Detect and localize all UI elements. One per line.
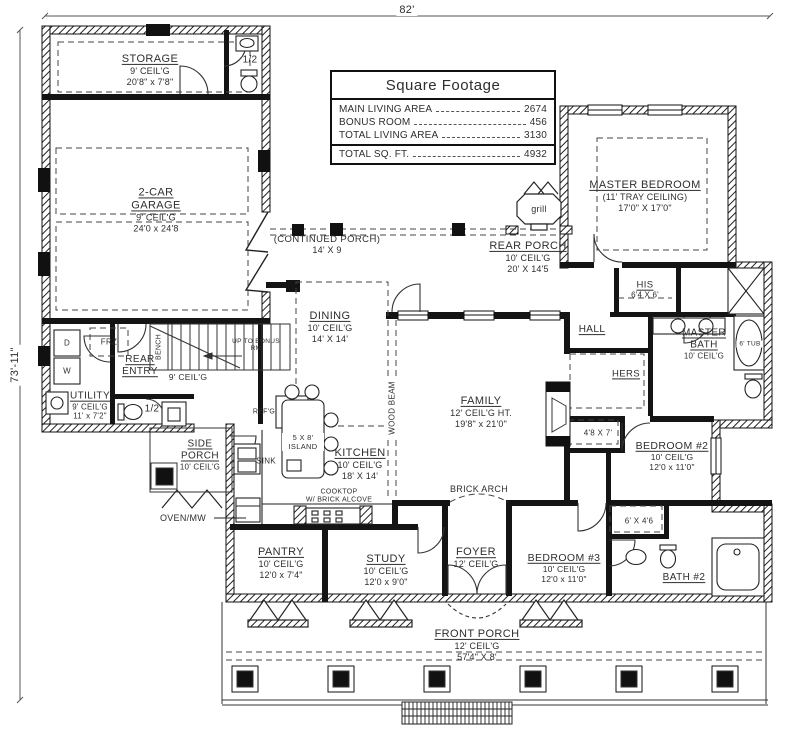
- room-name: PANTRY: [258, 546, 304, 559]
- room-label-pantry: PANTRY 10' CEIL'G 12'0 x 7'4": [258, 546, 304, 580]
- room-size: 14' X 9: [274, 245, 381, 256]
- square-footage-table: Square Footage MAIN LIVING AREA 2674 BON…: [330, 70, 556, 165]
- toilet-icon: [660, 545, 676, 550]
- room-label-continued-porch: (CONTINUED PORCH) 14' X 9: [274, 234, 381, 256]
- dryer-label: D: [64, 339, 70, 348]
- room-size: 12'0 x 9'0": [364, 576, 409, 587]
- dimension-left: 73'-11": [9, 344, 21, 385]
- room-name: UTILITY: [70, 391, 110, 403]
- room-label-hall: HALL: [579, 324, 606, 336]
- room-ceiling: 9' CEIL'G: [122, 66, 178, 77]
- room-name: HIS: [631, 280, 659, 291]
- room-name: BEDROOM #2: [636, 440, 709, 452]
- washer-label: W: [63, 367, 71, 376]
- table-row: MAIN LIVING AREA 2674: [339, 103, 547, 116]
- room-size: 19'8" x 21'0": [450, 418, 512, 429]
- room-size: 14' X 14': [308, 333, 353, 344]
- room-name: MASTER BATH: [675, 327, 733, 351]
- room-label-garage: 2-CAR GARAGE 9' CEIL'G 24'0 x 24'8: [124, 186, 188, 233]
- porch-columns: [232, 666, 738, 692]
- table-total-row: TOTAL SQ. FT. 4932: [332, 144, 554, 163]
- oven-mw-label: OVEN/MW: [160, 513, 206, 523]
- room-name: KITCHEN: [334, 447, 385, 460]
- room-label-master-bath: MASTER BATH 10' CEIL'G: [675, 327, 733, 360]
- bath2-icons: [626, 538, 764, 596]
- floor-plan: Square Footage MAIN LIVING AREA 2674 BON…: [0, 0, 800, 729]
- room-ceiling: 10' CEIL'G: [528, 564, 601, 574]
- room-name: FAMILY: [450, 395, 512, 408]
- room-name: FOYER: [454, 546, 499, 559]
- room-size: 11' x 7'2": [70, 412, 110, 421]
- room-label-rear-porch: REAR PORCH 10' CEIL'G 20' X 14'5: [489, 240, 566, 274]
- leader-line: [413, 156, 520, 157]
- room-label-dining: DINING 10' CEIL'G 14' X 14': [308, 310, 353, 344]
- room-size: 12'0 x 11'0": [528, 574, 601, 584]
- room-size: 18' X 14': [334, 470, 385, 481]
- room-ceiling: 12' CEIL'G: [435, 641, 520, 652]
- closet-a-label: 4'8 X 7': [584, 429, 613, 438]
- room-name: HERS: [612, 368, 640, 379]
- room-ceiling: 10' CEIL'G: [172, 462, 228, 471]
- room-label-master-bedroom: MASTER BEDROOM (11' TRAY CEILING) 17'0" …: [589, 179, 700, 213]
- leader-line: [436, 111, 520, 112]
- room-label-utility: UTILITY 9' CEIL'G 11' x 7'2": [70, 391, 110, 422]
- toilet-icon: [745, 374, 762, 379]
- cooktop-sub-label: W/ BRICK ALCOVE: [306, 497, 372, 504]
- bench-label: BENCH: [156, 334, 163, 360]
- room-ceiling: 10' CEIL'G: [675, 351, 733, 360]
- room-label-front-porch: FRONT PORCH 12' CEIL'G 57'4" X 8': [435, 628, 520, 662]
- leader-line: [442, 137, 520, 138]
- room-ceiling: 10' CEIL'G: [489, 253, 566, 264]
- room-label-family: FAMILY 12' CEIL'G HT. 19'8" x 21'0": [450, 395, 512, 429]
- room-ceiling: 10' CEIL'G: [636, 452, 709, 462]
- sink-icon: [626, 550, 646, 565]
- room-name: MASTER BEDROOM: [589, 179, 700, 192]
- room-size: 57'4" X 8': [435, 651, 520, 662]
- steps-icon: [402, 702, 512, 724]
- room-label-bedroom3: BEDROOM #3 10' CEIL'G 12'0 x 11'0": [528, 552, 601, 584]
- room-label-his-closet: HIS 6'4 X 6': [631, 280, 659, 301]
- room-ceiling: 10' CEIL'G: [334, 460, 385, 471]
- island-label: 5 X 8' ISLAND: [282, 433, 324, 451]
- room-ceiling: 10' CEIL'G: [308, 323, 353, 334]
- bonus-stairs-label: UP TO BONUS RM: [232, 338, 280, 352]
- room-name: BATH #2: [663, 572, 706, 584]
- square-footage-title: Square Footage: [332, 72, 554, 100]
- room-label-bedroom2: BEDROOM #2 10' CEIL'G 12'0 x 11'0": [636, 440, 709, 472]
- fireplace-icon: [546, 382, 570, 446]
- room-name: BEDROOM #3: [528, 552, 601, 564]
- dimension-top: 82': [396, 4, 417, 16]
- toilet-icon: [118, 404, 124, 420]
- room-name: DINING: [308, 310, 353, 323]
- room-ceiling: 10' CEIL'G: [364, 566, 409, 577]
- room-ceiling: 9' CEIL'G: [70, 402, 110, 411]
- row-value: 3130: [524, 130, 547, 141]
- room-size: 6'4 X 6': [631, 291, 659, 300]
- room-label-hers-closet: HERS: [612, 368, 640, 379]
- room-ceiling: 12' CEIL'G: [454, 559, 499, 570]
- room-label-kitchen: KITCHEN 10' CEIL'G 18' X 14': [334, 447, 385, 481]
- room-size: 12'0 x 7'4": [258, 569, 304, 580]
- room-size: 20'8" x 7'8": [122, 76, 178, 87]
- room-label-side-porch: SIDE PORCH 10' CEIL'G: [172, 438, 228, 471]
- row-label: TOTAL LIVING AREA: [339, 130, 438, 141]
- half-bath-label: 1/2: [243, 55, 258, 66]
- room-name: HALL: [579, 324, 606, 336]
- room-name: REAR PORCH: [489, 240, 566, 253]
- freezer-label: FRZ: [101, 338, 117, 347]
- room-ceiling: 12' CEIL'G HT.: [450, 408, 512, 419]
- row-label: BONUS ROOM: [339, 117, 410, 128]
- table-row: TOTAL LIVING AREA 3130: [339, 129, 547, 142]
- porch-column: [156, 468, 173, 485]
- brick-arch-label: BRICK ARCH: [450, 484, 508, 494]
- row-label: TOTAL SQ. FT.: [339, 149, 409, 160]
- room-name: FRONT PORCH: [435, 628, 520, 641]
- brick-alcove-wall: [294, 506, 306, 524]
- room-ceiling: (11' TRAY CEILING): [589, 192, 700, 203]
- toilet-icon: [241, 70, 257, 76]
- closet-b-label: 6' X 4'6: [625, 517, 654, 526]
- room-label-storage: STORAGE 9' CEIL'G 20'8" x 7'8": [122, 53, 178, 87]
- room-name: 2-CAR GARAGE: [124, 186, 188, 212]
- room-name: SIDE PORCH: [172, 438, 228, 462]
- fridge-label: REF'G: [253, 409, 275, 416]
- stool-icon: [305, 385, 319, 399]
- room-size: 20' X 14'5: [489, 263, 566, 274]
- room-label-study: STUDY 10' CEIL'G 12'0 x 9'0": [364, 553, 409, 587]
- stool-icon: [285, 385, 299, 399]
- brick-arch-icon: [450, 494, 508, 502]
- room-size: 24'0 x 24'8: [124, 223, 188, 234]
- row-value: 456: [530, 117, 547, 128]
- room-name: (CONTINUED PORCH): [274, 234, 381, 245]
- room-label-foyer: FOYER 12' CEIL'G: [454, 546, 499, 570]
- cooktop-label: COOKTOP: [321, 489, 358, 496]
- brick-alcove-wall: [360, 506, 372, 524]
- grill-label: grill: [531, 204, 547, 214]
- wood-beam-label: WOOD BEAM: [388, 378, 397, 437]
- room-name: STUDY: [364, 553, 409, 566]
- stool-icon: [324, 413, 338, 427]
- tub-label: 6' TUB: [736, 341, 763, 348]
- row-value: 4932: [524, 149, 547, 160]
- room-name: STORAGE: [122, 53, 178, 66]
- room-ceiling: 10' CEIL'G: [258, 559, 304, 570]
- row-value: 2674: [524, 104, 547, 115]
- leader-line: [414, 124, 525, 125]
- ceiling9-label: 9' CEIL'G: [169, 372, 208, 382]
- half-bath2-label: 1/2: [145, 404, 160, 415]
- garage-door-icon: [246, 212, 268, 292]
- row-label: MAIN LIVING AREA: [339, 104, 432, 115]
- room-label-bath2: BATH #2: [663, 572, 706, 584]
- room-size: 12'0 x 11'0": [636, 462, 709, 472]
- table-row: BONUS ROOM 456: [339, 116, 547, 129]
- room-size: 17'0" X 17'0": [589, 202, 700, 213]
- room-ceiling: 9' CEIL'G: [124, 212, 188, 223]
- square-footage-rows: MAIN LIVING AREA 2674 BONUS ROOM 456 TOT…: [332, 100, 554, 144]
- sink-label: SINK: [256, 457, 276, 466]
